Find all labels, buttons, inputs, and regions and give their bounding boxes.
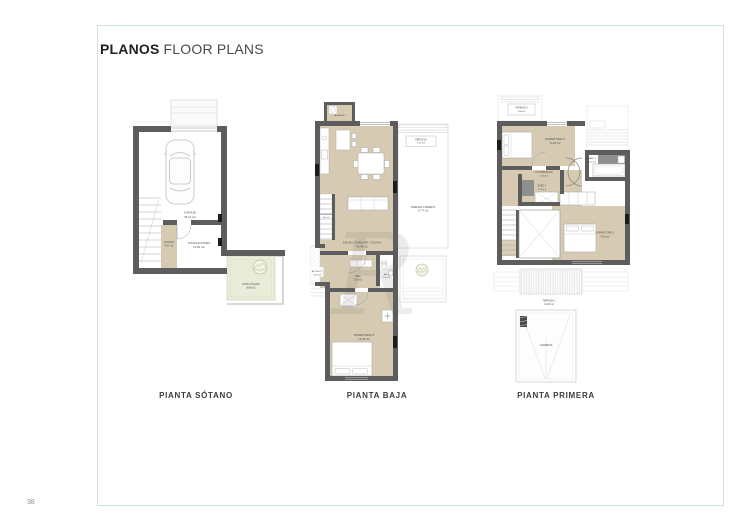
bano1-label: BAÑO 1 — [538, 185, 547, 188]
garage-door — [171, 128, 217, 131]
wardrobe-icon — [340, 294, 357, 306]
aseo-label: ASEO — [384, 273, 390, 276]
sink-icon — [618, 156, 625, 163]
stairs-icon — [502, 210, 519, 258]
page-title-bold: PLANOS — [100, 41, 160, 57]
bano1-tiles — [522, 180, 534, 196]
acceso-area: 4.67 m2 — [165, 245, 174, 248]
terraza2-area: 3.06 m2 — [518, 111, 527, 113]
terraza2-label-box — [508, 104, 535, 115]
lavadero-label: LAVADERO — [334, 114, 346, 117]
cubierta-label: CUBIERTA — [540, 343, 553, 347]
caption-baja: PIANTA BAJA — [307, 391, 447, 400]
stair-void — [519, 210, 560, 258]
garaje-area: 35.14 m2 — [184, 215, 196, 219]
patio-area: 8.85 m2 — [246, 287, 256, 290]
pergola-label: PÉRGOLA — [415, 138, 427, 141]
closet-row-icon — [560, 192, 595, 205]
window-marker — [625, 214, 629, 224]
page-number: 38 — [27, 499, 35, 506]
sideboard-icon — [350, 260, 372, 267]
aseo-area: 2.08 m2 — [383, 277, 391, 279]
caption-primera: PIANTA PRIMERA — [486, 391, 626, 400]
salon-area: 43.48 m2 — [356, 245, 368, 249]
bed-icon — [502, 132, 532, 158]
page-title: PLANOSFLOOR PLANS — [100, 41, 264, 57]
window-marker — [393, 181, 397, 193]
dormitorio1-area: 8.60 m2 — [600, 236, 610, 239]
dormitorio1-label: DORMITORIO 1 — [596, 231, 616, 235]
bano1-area: 3.46 m2 — [538, 189, 547, 191]
hall-area: 3.93 m2 — [354, 280, 363, 282]
page-title-regular: FLOOR PLANS — [164, 41, 264, 57]
escalera-area: 4.02 m2 — [322, 217, 330, 219]
walls — [133, 126, 285, 274]
hall-label: HALL — [355, 275, 362, 278]
plant-icon — [253, 260, 267, 274]
acceso1-label: ACCESO 1 — [312, 270, 323, 273]
terraza1 — [494, 269, 628, 294]
window-marker — [393, 336, 397, 348]
floor-plan-baja: LAVADERO PÉRGOLA 4.09 m2 TERRAZA CUBIERT… — [310, 96, 450, 386]
stairs-icon — [139, 198, 161, 263]
patio-ingles — [227, 256, 283, 304]
sofa-icon — [348, 197, 388, 210]
driveway — [133, 100, 217, 126]
floor-plan-primera: TERRAZA 2 3.06 m2 DORMITORIO 2 14.28 m2 … — [492, 94, 632, 390]
terraza2-label: TERRAZA 2 — [515, 107, 528, 110]
washer-icon — [329, 106, 337, 114]
dormitorio2-label: DORMITORIO 2 — [545, 137, 565, 141]
distribuidor-label: DISTRIBUIDOR — [535, 171, 552, 174]
door-arc — [177, 225, 191, 239]
chimney-icon — [520, 316, 527, 327]
bed-icon — [332, 342, 372, 376]
ac-unit-icon — [382, 310, 393, 322]
brochure-page: PLANOSFLOOR PLANS — [0, 0, 756, 528]
pergola-area: 4.09 m2 — [417, 143, 426, 145]
instalaciones-area: 14.60 m2 — [193, 245, 205, 249]
window-marker — [315, 164, 319, 176]
distribuidor-area: 6.09 m2 — [540, 176, 549, 178]
escalera-label: ESCALERA — [321, 213, 332, 216]
terraza1-area: 12.20 m2 — [544, 304, 554, 306]
caption-sotano: PIANTA SÓTANO — [126, 391, 266, 400]
dormitorio2-area: 14.28 m2 — [550, 141, 561, 145]
garden-patio — [400, 256, 446, 302]
floor-plan-sotano: GARAJE 35.14 m2 ACCESO 4.67 m2 INSTALACI… — [133, 98, 285, 310]
bed-icon — [564, 224, 596, 252]
dormitorio3-area: 13.36 m2 — [358, 337, 370, 341]
bano2-label: BAÑO 2 — [588, 157, 597, 160]
terraza1-label: TERRAZA 1 — [542, 300, 556, 303]
acceso1-area: 3.48 m2 — [313, 274, 321, 276]
terraza-cubierta-area: 17.77 m2 — [418, 210, 429, 213]
car-icon — [165, 140, 196, 204]
roof-terrace-right — [587, 106, 628, 150]
window-marker — [218, 238, 222, 246]
bano2-area: 4.13 m2 — [588, 161, 596, 163]
plant-icon — [416, 264, 428, 276]
window-marker — [218, 214, 222, 222]
window-marker — [497, 140, 501, 150]
